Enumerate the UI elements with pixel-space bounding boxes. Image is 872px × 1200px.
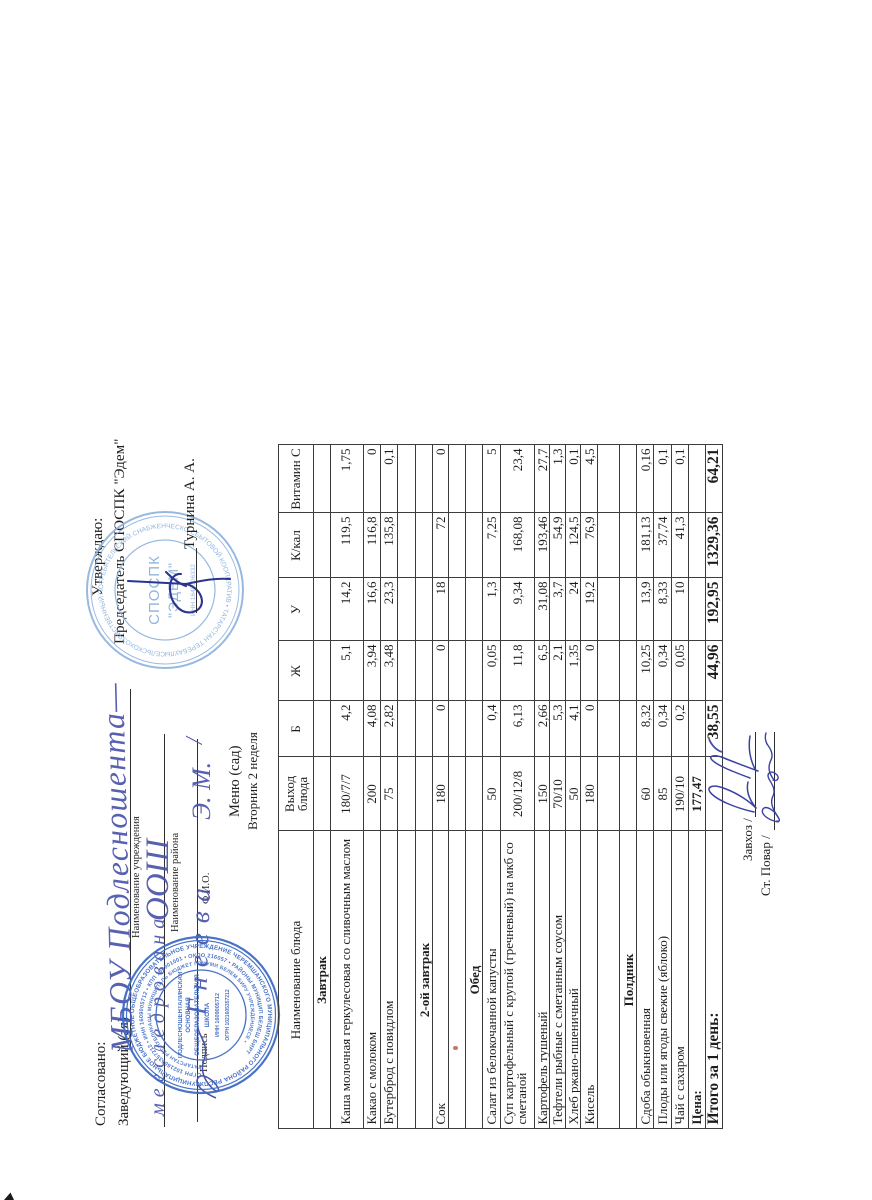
svg-text:ОСНОВНАЯ: ОСНОВНАЯ — [186, 997, 192, 1032]
svg-text:ОГРН 1021605357212 • ИНН 16090: ОГРН 1021605357212 • ИНН 1609005712 • КП… — [139, 953, 263, 1077]
svg-text:ОГРН 1021605357212: ОГРН 1021605357212 — [225, 989, 231, 1040]
svg-text:ШКОЛА: ШКОЛА — [204, 1002, 211, 1027]
svg-text:ПОДЛЕСНОШЕНТАЛИНСКАЯ: ПОДЛЕСНОШЕНТАЛИНСКАЯ — [178, 972, 184, 1058]
svg-text:ИНН 1609005712: ИНН 1609005712 — [215, 993, 221, 1037]
svg-text:ОБЩЕОБРАЗОВАТЕЛЬНАЯ: ОБЩЕОБРАЗОВАТЕЛЬНАЯ — [195, 974, 201, 1055]
